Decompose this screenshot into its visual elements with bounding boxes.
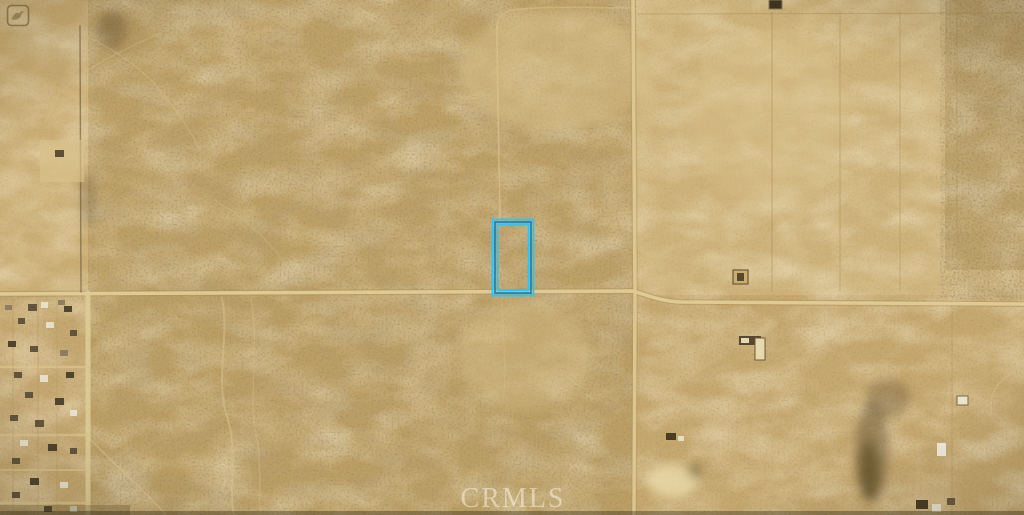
listing-photo[interactable]: CRMLS <box>0 0 1024 515</box>
satellite-map: CRMLS <box>0 0 1024 515</box>
vignette <box>0 0 1024 515</box>
